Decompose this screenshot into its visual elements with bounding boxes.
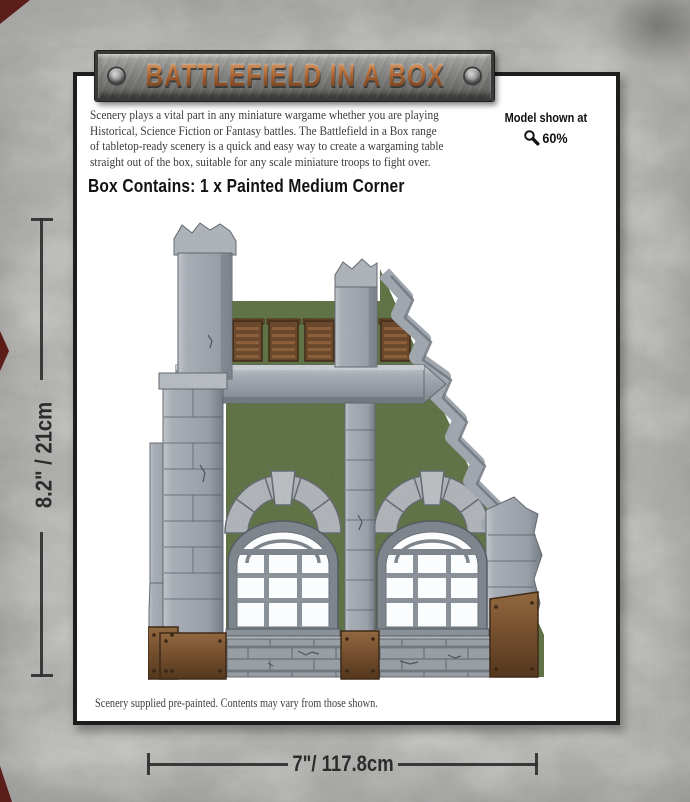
model-pillar-middle-upper (335, 259, 377, 367)
model-window-left (226, 521, 340, 636)
brand-title: BATTLEFIELD IN A BOX (145, 58, 445, 94)
width-dimension-line-left (147, 763, 288, 766)
model-vents (231, 319, 412, 361)
scale-note: Model shown at 60% (490, 109, 602, 146)
model-pillar-left-lower (159, 373, 227, 635)
rivet-icon (465, 69, 480, 84)
brand-banner: BATTLEFIELD IN A BOX (95, 51, 494, 101)
width-dimension-label: 7"/ 117.8cm (292, 751, 393, 777)
model-window-right (375, 521, 489, 636)
height-dimension-label: 8.2" / 21cm (31, 402, 58, 508)
intro-line: Scenery plays a vital part in any miniat… (90, 108, 444, 124)
intro-line: of tabletop-ready scenery is a quick and… (90, 139, 444, 155)
height-dimension-line-lower (40, 532, 43, 677)
scale-note-label: Model shown at (505, 111, 588, 125)
contents-heading: Box Contains: 1 x Painted Medium Corner (88, 175, 405, 197)
box-front-panel: 8.2" / 21cm 7"/ 117.8cm Scenery plays a … (0, 0, 690, 802)
rivet-icon (109, 69, 124, 84)
footnote: Scenery supplied pre-painted. Contents m… (95, 696, 378, 711)
height-dimension-line-upper (40, 218, 43, 380)
concrete-stain (608, 0, 690, 66)
magnifier-icon (523, 129, 540, 146)
intro-line: straight out of the box, suitable for an… (90, 155, 444, 171)
model-pillar-left-upper (174, 223, 236, 379)
intro-line: Historical, Science Fiction or Fantasy b… (90, 124, 444, 140)
scale-value: 60% (542, 130, 567, 146)
intro-paragraph: Scenery plays a vital part in any miniat… (90, 108, 492, 170)
height-dimension-cap-bottom (31, 674, 53, 677)
content-panel: Scenery plays a vital part in any miniat… (73, 72, 620, 725)
width-dimension-line-right (398, 763, 538, 766)
width-dimension-cap-right (535, 753, 538, 775)
product-image (148, 215, 548, 685)
